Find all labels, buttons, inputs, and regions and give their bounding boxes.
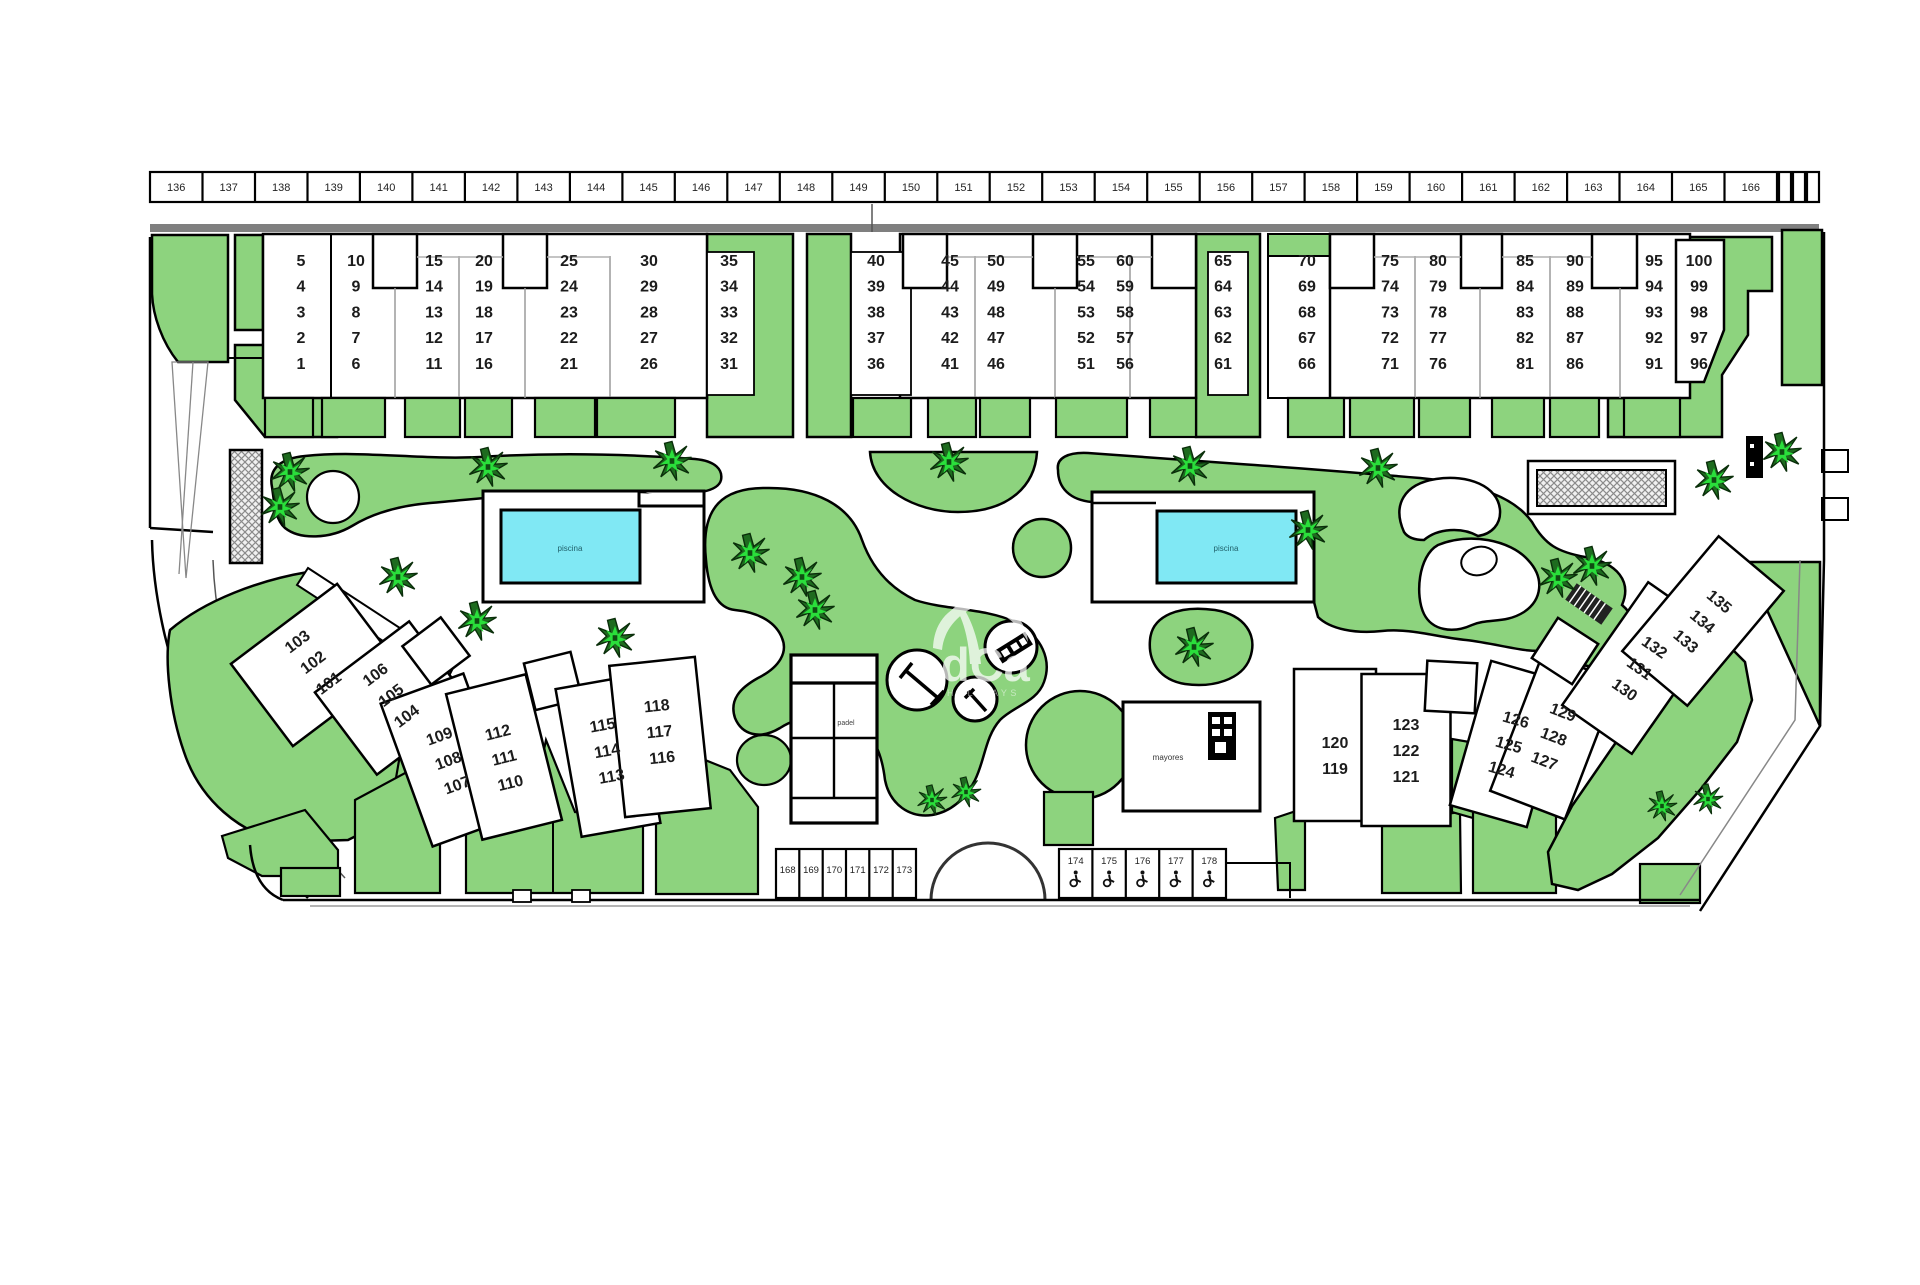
svg-text:90: 90: [1566, 253, 1584, 270]
svg-text:piscina: piscina: [558, 544, 583, 553]
svg-text:8: 8: [352, 304, 361, 321]
svg-text:37: 37: [867, 330, 885, 347]
svg-text:150: 150: [902, 182, 920, 194]
svg-text:18: 18: [475, 304, 493, 321]
svg-text:136: 136: [167, 182, 185, 194]
svg-text:123: 123: [1393, 717, 1420, 734]
svg-text:82: 82: [1516, 330, 1534, 347]
svg-text:93: 93: [1645, 304, 1663, 321]
svg-text:52: 52: [1077, 330, 1095, 347]
svg-text:81: 81: [1516, 356, 1534, 373]
svg-text:20: 20: [475, 253, 493, 270]
svg-text:23: 23: [560, 304, 578, 321]
svg-text:60: 60: [1116, 253, 1134, 270]
svg-text:174: 174: [1068, 856, 1084, 867]
svg-text:34: 34: [720, 279, 738, 296]
svg-text:171: 171: [850, 865, 866, 876]
svg-text:162: 162: [1532, 182, 1550, 194]
svg-text:71: 71: [1381, 356, 1399, 373]
svg-text:15: 15: [425, 253, 443, 270]
svg-text:99: 99: [1690, 279, 1708, 296]
svg-text:140: 140: [377, 182, 395, 194]
svg-text:152: 152: [1007, 182, 1025, 194]
svg-text:47: 47: [987, 330, 1005, 347]
svg-text:169: 169: [803, 865, 819, 876]
svg-text:149: 149: [849, 182, 867, 194]
svg-text:98: 98: [1690, 304, 1708, 321]
svg-text:75: 75: [1381, 253, 1399, 270]
svg-text:29: 29: [640, 279, 658, 296]
svg-text:36: 36: [867, 356, 885, 373]
svg-text:66: 66: [1298, 356, 1316, 373]
svg-text:158: 158: [1322, 182, 1340, 194]
svg-text:35: 35: [720, 253, 738, 270]
svg-text:100: 100: [1686, 253, 1713, 270]
svg-text:padel: padel: [837, 720, 855, 727]
svg-text:141: 141: [430, 182, 448, 194]
svg-text:22: 22: [560, 330, 578, 347]
svg-text:173: 173: [896, 865, 912, 876]
svg-text:160: 160: [1427, 182, 1445, 194]
svg-text:94: 94: [1645, 279, 1663, 296]
svg-text:137: 137: [220, 182, 238, 194]
svg-text:68: 68: [1298, 304, 1316, 321]
svg-text:9: 9: [352, 279, 361, 296]
svg-text:175: 175: [1101, 856, 1117, 867]
svg-text:27: 27: [640, 330, 658, 347]
svg-text:144: 144: [587, 182, 605, 194]
svg-text:72: 72: [1381, 330, 1399, 347]
svg-text:44: 44: [941, 279, 959, 296]
svg-text:26: 26: [640, 356, 658, 373]
svg-text:74: 74: [1381, 279, 1399, 296]
svg-text:165: 165: [1689, 182, 1707, 194]
svg-text:21: 21: [560, 356, 578, 373]
svg-text:5: 5: [297, 253, 306, 270]
svg-text:61: 61: [1214, 356, 1232, 373]
svg-text:120: 120: [1322, 735, 1349, 752]
svg-text:64: 64: [1214, 279, 1232, 296]
svg-text:58: 58: [1116, 304, 1134, 321]
svg-text:48: 48: [987, 304, 1005, 321]
svg-text:178: 178: [1201, 856, 1217, 867]
svg-text:88: 88: [1566, 304, 1584, 321]
svg-text:77: 77: [1429, 330, 1447, 347]
svg-text:157: 157: [1269, 182, 1287, 194]
svg-text:154: 154: [1112, 182, 1130, 194]
svg-text:176: 176: [1135, 856, 1151, 867]
svg-text:166: 166: [1742, 182, 1760, 194]
svg-text:170: 170: [826, 865, 842, 876]
svg-text:164: 164: [1637, 182, 1655, 194]
svg-text:79: 79: [1429, 279, 1447, 296]
svg-text:33: 33: [720, 304, 738, 321]
svg-text:dCa: dCa: [941, 638, 1031, 691]
svg-text:148: 148: [797, 182, 815, 194]
svg-text:45: 45: [941, 253, 959, 270]
svg-text:24: 24: [560, 279, 578, 296]
svg-text:97: 97: [1690, 330, 1708, 347]
svg-text:38: 38: [867, 304, 885, 321]
svg-text:86: 86: [1566, 356, 1584, 373]
svg-text:161: 161: [1479, 182, 1497, 194]
svg-text:80: 80: [1429, 253, 1447, 270]
svg-text:31: 31: [720, 356, 738, 373]
svg-text:piscina: piscina: [1214, 544, 1239, 553]
svg-text:53: 53: [1077, 304, 1095, 321]
svg-text:116: 116: [649, 749, 677, 769]
svg-text:14: 14: [425, 279, 443, 296]
svg-text:67: 67: [1298, 330, 1316, 347]
svg-text:147: 147: [744, 182, 762, 194]
svg-text:11: 11: [426, 356, 443, 373]
svg-text:42: 42: [941, 330, 959, 347]
svg-text:28: 28: [640, 304, 658, 321]
svg-text:12: 12: [425, 330, 443, 347]
svg-text:55: 55: [1077, 253, 1095, 270]
svg-text:92: 92: [1645, 330, 1663, 347]
svg-text:118: 118: [643, 697, 671, 717]
svg-text:96: 96: [1690, 356, 1708, 373]
svg-text:142: 142: [482, 182, 500, 194]
svg-text:10: 10: [347, 253, 365, 270]
svg-text:59: 59: [1116, 279, 1134, 296]
svg-text:46: 46: [987, 356, 1005, 373]
svg-text:156: 156: [1217, 182, 1235, 194]
svg-text:57: 57: [1116, 330, 1134, 347]
svg-text:17: 17: [475, 330, 493, 347]
svg-text:85: 85: [1516, 253, 1534, 270]
svg-text:70: 70: [1298, 253, 1316, 270]
svg-text:6: 6: [352, 356, 361, 373]
svg-text:139: 139: [325, 182, 343, 194]
svg-text:83: 83: [1516, 304, 1534, 321]
svg-text:51: 51: [1077, 356, 1095, 373]
svg-text:155: 155: [1164, 182, 1182, 194]
svg-text:43: 43: [941, 304, 959, 321]
svg-text:119: 119: [1322, 761, 1348, 778]
svg-text:78: 78: [1429, 304, 1447, 321]
svg-text:65: 65: [1214, 253, 1232, 270]
svg-text:168: 168: [780, 865, 796, 876]
svg-text:62: 62: [1214, 330, 1232, 347]
svg-text:89: 89: [1566, 279, 1584, 296]
svg-text:95: 95: [1645, 253, 1663, 270]
svg-text:163: 163: [1584, 182, 1602, 194]
svg-text:32: 32: [720, 330, 738, 347]
svg-text:143: 143: [534, 182, 552, 194]
svg-text:151: 151: [954, 182, 972, 194]
svg-text:HOLIDAYS: HOLIDAYS: [947, 688, 1020, 698]
svg-text:mayores: mayores: [1153, 753, 1184, 762]
svg-text:87: 87: [1566, 330, 1584, 347]
svg-text:172: 172: [873, 865, 889, 876]
svg-text:145: 145: [639, 182, 657, 194]
svg-text:117: 117: [646, 723, 674, 743]
svg-text:13: 13: [425, 304, 443, 321]
svg-text:63: 63: [1214, 304, 1232, 321]
svg-text:49: 49: [987, 279, 1005, 296]
svg-text:50: 50: [987, 253, 1005, 270]
svg-text:153: 153: [1059, 182, 1077, 194]
svg-text:4: 4: [297, 279, 306, 296]
svg-text:30: 30: [640, 253, 658, 270]
svg-text:41: 41: [941, 356, 959, 373]
svg-text:56: 56: [1116, 356, 1134, 373]
svg-text:25: 25: [560, 253, 578, 270]
svg-text:54: 54: [1077, 279, 1095, 296]
svg-text:7: 7: [352, 330, 361, 347]
svg-text:69: 69: [1298, 279, 1316, 296]
svg-text:121: 121: [1393, 769, 1420, 786]
svg-text:146: 146: [692, 182, 710, 194]
svg-text:19: 19: [475, 279, 493, 296]
svg-text:138: 138: [272, 182, 290, 194]
svg-text:122: 122: [1393, 743, 1420, 760]
svg-text:3: 3: [297, 304, 306, 321]
svg-text:76: 76: [1429, 356, 1447, 373]
svg-text:39: 39: [867, 279, 885, 296]
svg-text:1: 1: [297, 356, 306, 373]
svg-text:2: 2: [297, 330, 306, 347]
svg-text:84: 84: [1516, 279, 1534, 296]
svg-text:177: 177: [1168, 856, 1184, 867]
svg-text:73: 73: [1381, 304, 1399, 321]
svg-text:159: 159: [1374, 182, 1392, 194]
svg-text:91: 91: [1645, 356, 1663, 373]
svg-text:16: 16: [475, 356, 493, 373]
svg-text:40: 40: [867, 253, 885, 270]
